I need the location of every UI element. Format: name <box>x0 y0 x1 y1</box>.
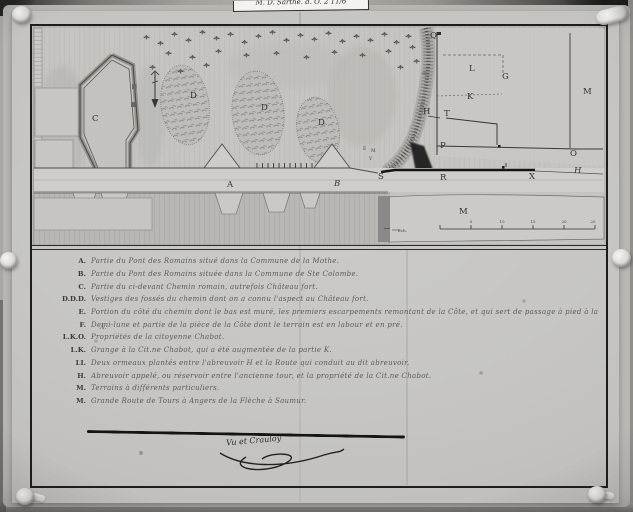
map-letter-m-small: M <box>371 148 376 154</box>
photo-of-archival-plan: 5 10 15 20 25 Ech. C D D D A B Q L <box>0 0 633 512</box>
legend-row: A.Partie du Pont des Romains situé dans … <box>44 255 600 268</box>
map-letter-m-route: M <box>459 207 468 217</box>
legend-row: L.K.O.Propriétés de la citoyenne Chabot. <box>44 331 600 344</box>
fort-gate <box>132 84 137 89</box>
scale-caption: Ech. <box>398 228 407 233</box>
paper-specks <box>0 0 2 2</box>
legend-row: M.Terrains à différents particuliers. <box>44 382 600 395</box>
map-letter-p: P <box>440 141 446 151</box>
scale-tick-label: 5 <box>470 219 473 224</box>
signature-flourish <box>212 443 352 473</box>
legend-text: Abreuvoir appelé, ou réservoir entre l'a… <box>91 372 431 380</box>
map-letter-o: O <box>570 149 577 159</box>
map-letter-h: H <box>423 107 430 117</box>
map-letter-c: C <box>92 114 99 124</box>
fields-right <box>436 28 604 166</box>
map-letter-d3: D <box>318 118 325 128</box>
legend-text: Demi-lune et partie de la pièce de la Cô… <box>91 321 403 329</box>
scale-tick-label: 20 <box>561 219 567 224</box>
map-letter-r: R <box>440 173 447 183</box>
map-letter-h-italic: H <box>573 166 582 176</box>
scale-tick-label: 10 <box>499 219 505 224</box>
legend-row: H.Abreuvoir appelé, ou réservoir entre l… <box>44 369 600 382</box>
signature-block: Vu et Crauloy <box>212 434 362 478</box>
map-letter-t: T <box>444 109 450 119</box>
map-drawing: 5 10 15 20 25 Ech. C D D D A B Q L <box>32 26 606 246</box>
legend-key: E. <box>44 308 91 316</box>
map-letter-d1: D <box>190 91 197 101</box>
legend-row: L.K.Grange à la Cit.ne Chabot, qui a été… <box>44 344 600 357</box>
legend-row: F.Demi-lune et partie de la pièce de la … <box>44 318 600 331</box>
legend-row: E.Portion du côté du chemin dont le bas … <box>44 306 600 319</box>
legend-key: L.K.O. <box>44 333 91 341</box>
map-letter-b: B <box>333 179 340 189</box>
embankment-below-road <box>34 192 390 246</box>
legend-text: Terrains à différents particuliers. <box>91 384 220 392</box>
fort-gate <box>131 102 136 107</box>
legend-row: D.D.D.Vestiges des fossés du chemin dont… <box>44 293 600 306</box>
legend-key: B. <box>44 270 91 278</box>
mounting-clip-bottom-left <box>16 488 34 505</box>
legend-key: LI. <box>44 359 91 367</box>
legend-text: Partie du ci-devant Chemin romain, autre… <box>91 283 318 291</box>
legend-key: C. <box>44 283 91 291</box>
archive-label-text: M. D. Sarthe. d. O. 2 11/6 <box>234 0 368 7</box>
map-letter-s: S <box>378 172 384 182</box>
legend-row: C.Partie du ci-devant Chemin romain, aut… <box>44 280 600 293</box>
mounting-clip-bottom-right <box>588 486 606 503</box>
glacis-plots <box>35 88 80 170</box>
map-letter-a: A <box>226 180 234 190</box>
legend-key: D.D.D. <box>44 295 91 303</box>
legend-key: F. <box>44 321 91 329</box>
legend-key: M. <box>44 384 91 392</box>
legend-key: H. <box>44 372 91 380</box>
sheet-separator-lines <box>32 245 606 250</box>
legend-text: Vestiges des fossés du chemin dont on a … <box>91 295 369 303</box>
legend-sub-note: A. <box>100 324 106 331</box>
map-letter-e-small: E <box>363 146 366 152</box>
scale-tick-label: 15 <box>530 219 536 224</box>
scale-tick-label: 25 <box>590 219 596 224</box>
lower-left-plot <box>34 198 152 230</box>
map-letter-m-right: M <box>583 87 592 97</box>
legend-key: M. <box>44 397 91 405</box>
legend-text: Propriétés de la citoyenne Chabot. <box>91 333 224 341</box>
grande-route-band: 5 10 15 20 25 Ech. <box>378 195 604 242</box>
legend-row: LI.Deux ormeaux plantés entre l'abreuvoi… <box>44 357 600 370</box>
legend-key: A. <box>44 257 91 265</box>
map-letter-x: X <box>529 172 536 182</box>
mounting-clip-mid-right <box>612 249 631 267</box>
legend-text: Partie du Pont des Romains situé dans la… <box>91 257 339 265</box>
map-letter-l: L <box>469 64 475 74</box>
legend-text: Grange à la Cit.ne Chabot, qui a été aug… <box>91 346 332 354</box>
map-letter-g: G <box>502 72 509 82</box>
legend-row: B.Partie du Pont des Romains située dans… <box>44 268 600 281</box>
map-letter-k: K <box>467 92 474 102</box>
archive-label: M. D. Sarthe. d. O. 2 11/6 <box>233 0 369 12</box>
legend-text: Portion du côté du chemin dont le bas es… <box>91 308 600 316</box>
map-letter-d2: D <box>261 103 268 113</box>
map-letter-q: Q <box>430 31 437 41</box>
mounting-clip-mid-left <box>0 252 17 269</box>
legend-text: Partie du Pont des Romains située dans l… <box>91 270 358 278</box>
legend-row: M.Grande Route de Tours à Angers de la F… <box>44 395 600 408</box>
legend-text: Grande Route de Tours à Angers de la Flè… <box>91 397 307 405</box>
mounting-clip-top-left <box>12 6 31 23</box>
legend-panel: A.Partie du Pont des Romains situé dans … <box>44 255 600 407</box>
legend-key: L.K. <box>44 346 91 354</box>
legend-text: Deux ormeaux plantés entre l'abreuvoir H… <box>91 359 410 367</box>
